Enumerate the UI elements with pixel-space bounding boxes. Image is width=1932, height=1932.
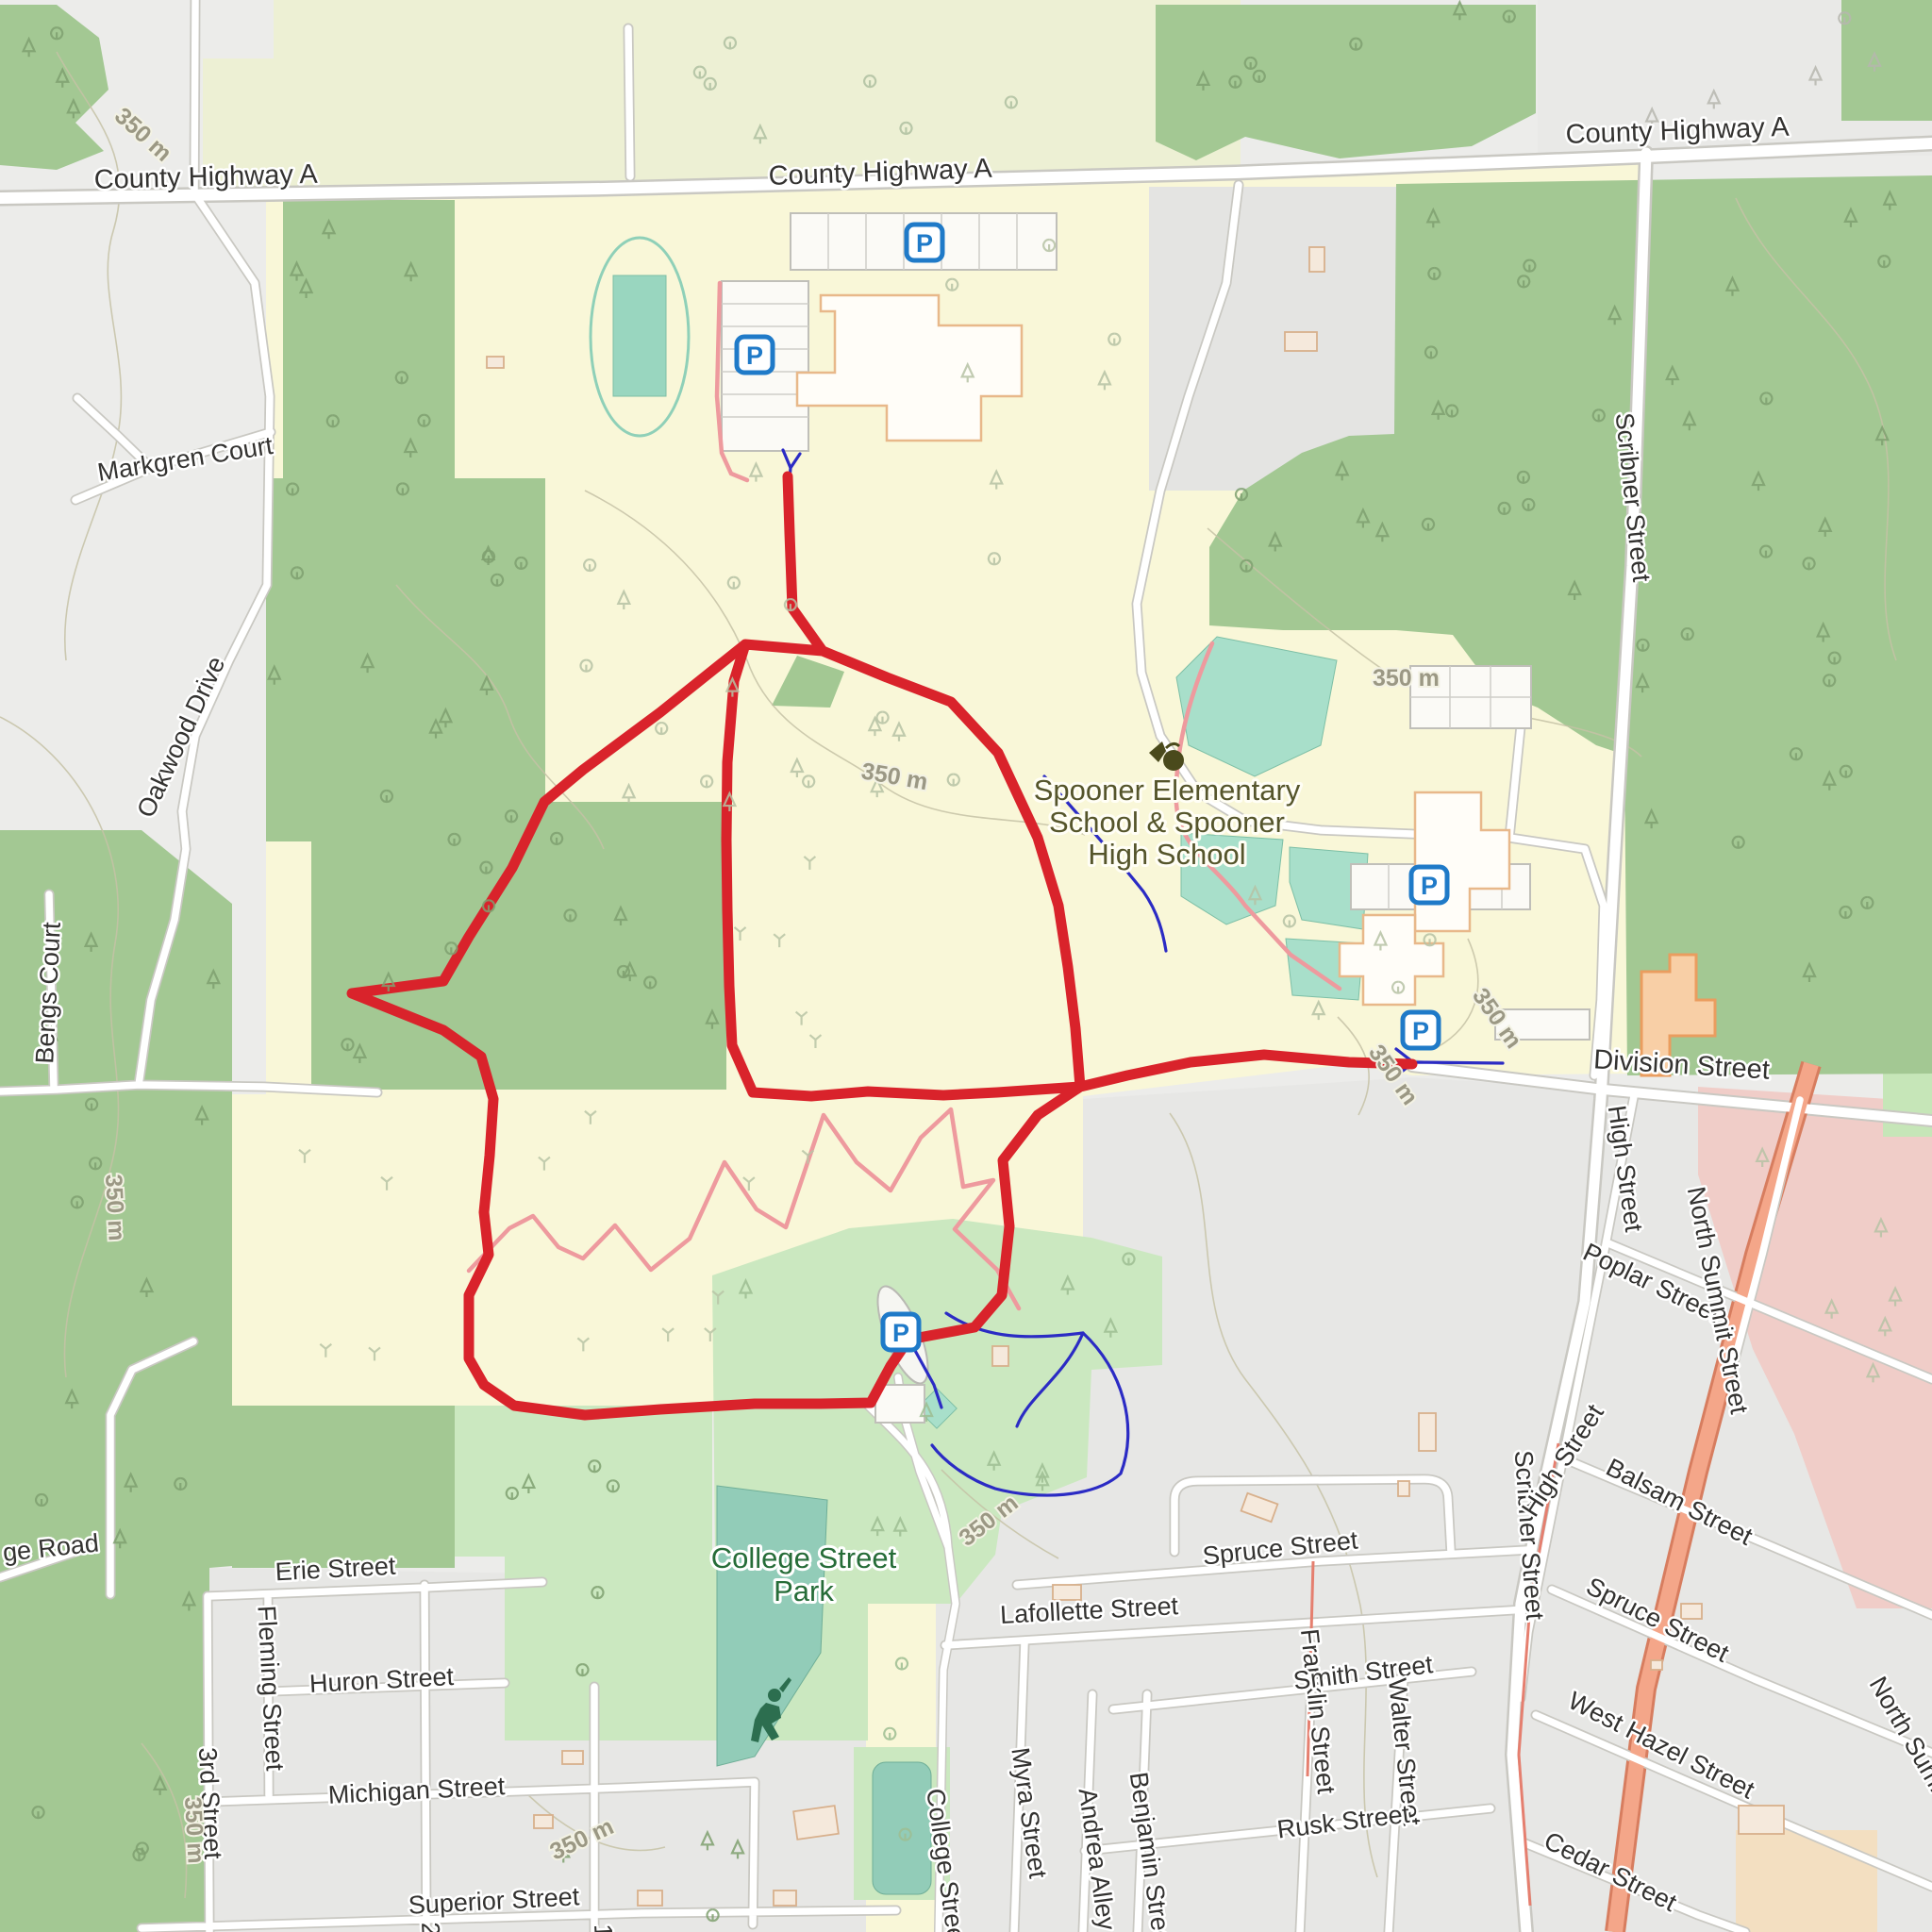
school-name-line2: School & Spooner — [1049, 806, 1285, 839]
school-name-line1: Spooner Elementary — [1034, 774, 1301, 807]
forest-west-1 — [283, 200, 455, 478]
forest-ne-top — [1156, 5, 1536, 160]
svg-text:P: P — [1421, 872, 1438, 900]
park-green-1 — [455, 1406, 712, 1557]
parking-icon[interactable]: P — [883, 1314, 919, 1350]
contour-label: 350 m — [1373, 665, 1440, 691]
road-label: 1st Street — [589, 1924, 623, 1932]
school-name-line3: High School — [1088, 838, 1245, 871]
forest-sw-arm — [232, 1406, 455, 1568]
forest-ne-corner — [1841, 0, 1932, 121]
svg-text:P: P — [1412, 1017, 1429, 1045]
road-label: 2nd Street — [416, 1922, 451, 1932]
parking-icon[interactable]: P — [1403, 1012, 1439, 1048]
parking-icon[interactable]: P — [1411, 867, 1447, 903]
tan-block — [1736, 1830, 1877, 1932]
field-top — [203, 0, 1241, 193]
svg-text:P: P — [916, 229, 933, 258]
road-label: County Highway A — [93, 159, 318, 195]
svg-text:P: P — [892, 1319, 909, 1347]
ballfield-2 — [873, 1762, 931, 1894]
park-name-line2: Park — [774, 1574, 834, 1607]
map-canvas[interactable]: P P P P P County Highway A County Highwa… — [0, 0, 1932, 1932]
svg-text:P: P — [746, 341, 763, 370]
parking-icon[interactable]: P — [737, 337, 773, 373]
stadium-infield — [613, 275, 666, 396]
contour-label: 350 m — [100, 1174, 130, 1241]
park-name-line1: College Street — [711, 1541, 897, 1574]
parking-icon[interactable]: P — [907, 225, 942, 260]
map-svg[interactable]: P P P P P County Highway A County Highwa… — [0, 0, 1932, 1932]
forest-west-2 — [266, 478, 545, 841]
contour-label: 350 m — [179, 1796, 209, 1864]
